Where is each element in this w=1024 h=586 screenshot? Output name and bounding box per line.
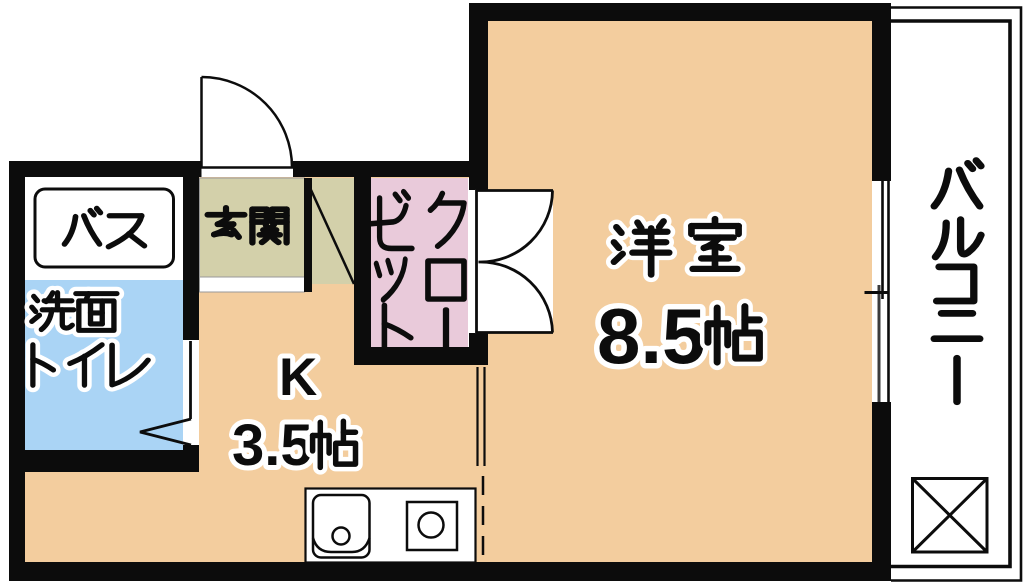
svg-text:3.5: 3.5 [232,413,313,478]
svg-text:K: K [279,348,317,407]
svg-text:8.5: 8.5 [597,292,705,380]
